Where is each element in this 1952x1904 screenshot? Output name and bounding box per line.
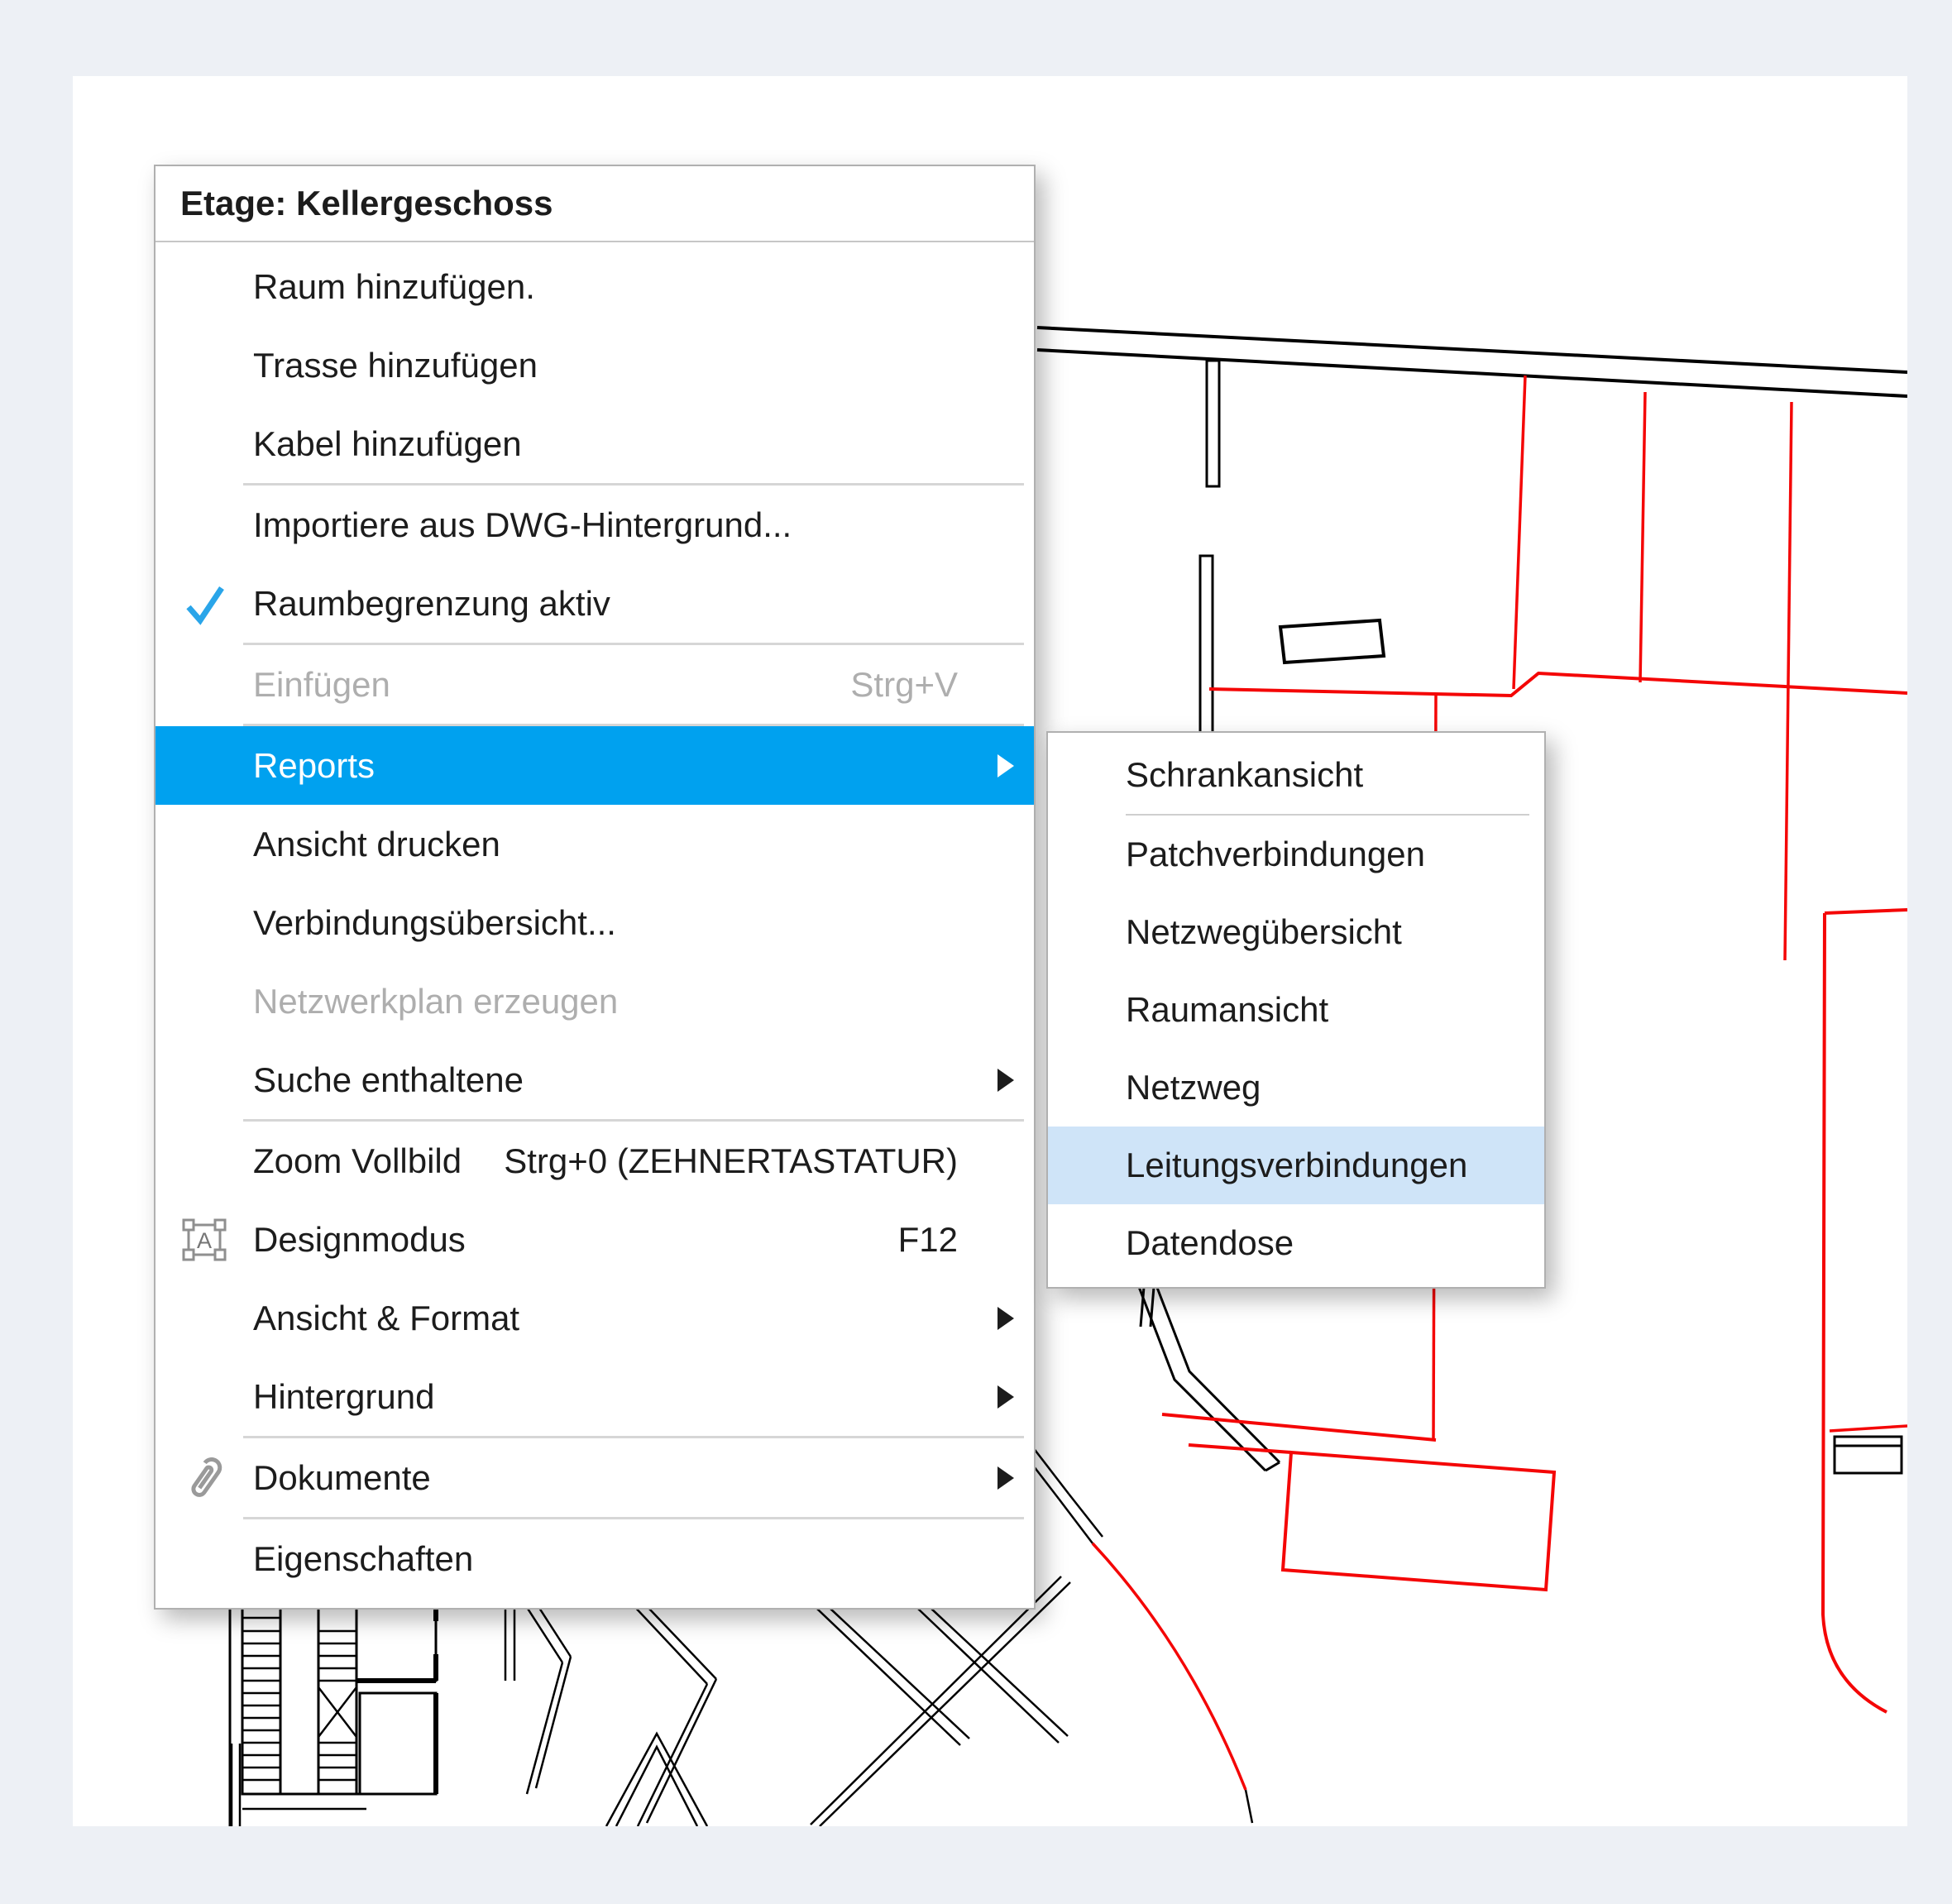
menu-item-label: Raumbegrenzung aktiv: [253, 584, 610, 624]
context-menu-title: Etage: Kellergeschoss: [180, 184, 553, 223]
submenu-arrow-icon: [998, 1385, 1014, 1409]
menu-item-zoom-vollbild[interactable]: Zoom Vollbild Strg+0 (ZEHNERTASTATUR): [155, 1122, 1034, 1200]
menu-item-eigenschaften[interactable]: Eigenschaften: [155, 1519, 1034, 1598]
menu-item-label: Dokumente: [253, 1458, 431, 1498]
submenu-arrow-icon: [998, 1307, 1014, 1330]
submenu-arrow-icon: [998, 1466, 1014, 1490]
menu-item-netzwerkplan-erzeugen[interactable]: Netzwerkplan erzeugen: [155, 962, 1034, 1041]
menu-item-trasse-hinzufuegen[interactable]: Trasse hinzufügen: [155, 326, 1034, 404]
menu-item-einfuegen[interactable]: Einfügen Strg+V: [155, 645, 1034, 724]
submenu-item-netzwegubersicht[interactable]: Netzwegübersicht: [1048, 893, 1544, 971]
menu-item-label: Importiere aus DWG-Hintergrund...: [253, 505, 792, 545]
svg-text:A: A: [197, 1228, 212, 1253]
menu-item-label: Netzwegübersicht: [1126, 912, 1402, 952]
menu-item-raum-hinzufuegen[interactable]: Raum hinzufügen.: [155, 247, 1034, 326]
menu-item-shortcut: Strg+0 (ZEHNERTASTATUR): [504, 1141, 958, 1181]
menu-item-reports[interactable]: Reports: [155, 726, 1034, 805]
submenu-item-raumansicht[interactable]: Raumansicht: [1048, 971, 1544, 1049]
menu-item-label: Netzweg: [1126, 1068, 1261, 1107]
menu-item-label: Designmodus: [253, 1220, 466, 1260]
menu-item-label: Schrankansicht: [1126, 755, 1363, 795]
menu-item-shortcut: Strg+V: [850, 665, 958, 705]
menu-item-label: Verbindungsübersicht...: [253, 903, 616, 943]
menu-item-label: Ansicht drucken: [253, 825, 500, 864]
context-menu: Etage: Kellergeschoss Raum hinzufügen. T…: [154, 165, 1036, 1610]
menu-item-label: Hintergrund: [253, 1377, 434, 1417]
paperclip-icon: [155, 1438, 253, 1517]
menu-item-label: Zoom Vollbild: [253, 1141, 462, 1181]
reports-submenu: Schrankansicht Patchverbindungen Netzweg…: [1046, 731, 1546, 1289]
checkmark-icon: [155, 564, 253, 643]
application-window: Etage: Kellergeschoss Raum hinzufügen. T…: [0, 0, 1952, 1904]
menu-item-label: Patchverbindungen: [1126, 835, 1425, 874]
design-mode-icon: A: [155, 1200, 253, 1279]
menu-item-label: Suche enthaltene: [253, 1060, 524, 1100]
menu-item-ansicht-und-format[interactable]: Ansicht & Format: [155, 1279, 1034, 1357]
submenu-item-patchverbindungen[interactable]: Patchverbindungen: [1048, 816, 1544, 893]
menu-item-designmodus[interactable]: A Designmodus F12: [155, 1200, 1034, 1279]
menu-item-label: Kabel hinzufügen: [253, 424, 522, 464]
menu-item-label: Eigenschaften: [253, 1539, 473, 1579]
menu-item-label: Datendose: [1126, 1223, 1294, 1263]
context-menu-header: Etage: Kellergeschoss: [155, 166, 1034, 242]
submenu-item-datendose[interactable]: Datendose: [1048, 1204, 1544, 1282]
menu-item-label: Leitungsverbindungen: [1126, 1146, 1467, 1185]
menu-item-dokumente[interactable]: Dokumente: [155, 1438, 1034, 1517]
menu-item-label: Raum hinzufügen.: [253, 267, 535, 307]
context-menu-items: Raum hinzufügen. Trasse hinzufügen Kabel…: [155, 242, 1034, 1608]
submenu-item-netzweg[interactable]: Netzweg: [1048, 1049, 1544, 1127]
submenu-arrow-icon: [998, 1069, 1014, 1092]
menu-item-raumbegrenzung-aktiv[interactable]: Raumbegrenzung aktiv: [155, 564, 1034, 643]
menu-item-kabel-hinzufuegen[interactable]: Kabel hinzufügen: [155, 404, 1034, 483]
menu-item-ansicht-drucken[interactable]: Ansicht drucken: [155, 805, 1034, 883]
menu-item-label: Raumansicht: [1126, 990, 1328, 1030]
menu-item-label: Trasse hinzufügen: [253, 346, 538, 385]
submenu-item-leitungsverbindungen[interactable]: Leitungsverbindungen: [1048, 1127, 1544, 1204]
menu-item-shortcut: F12: [898, 1220, 958, 1260]
menu-item-label: Einfügen: [253, 665, 390, 705]
submenu-item-schrankansicht[interactable]: Schrankansicht: [1048, 736, 1544, 814]
menu-item-importiere-dwg[interactable]: Importiere aus DWG-Hintergrund...: [155, 486, 1034, 564]
menu-item-label: Netzwerkplan erzeugen: [253, 982, 618, 1021]
menu-item-label: Ansicht & Format: [253, 1299, 519, 1338]
menu-item-verbindungsuebersicht[interactable]: Verbindungsübersicht...: [155, 883, 1034, 962]
submenu-arrow-icon: [998, 754, 1014, 777]
menu-item-suche-enthaltene[interactable]: Suche enthaltene: [155, 1041, 1034, 1119]
menu-item-hintergrund[interactable]: Hintergrund: [155, 1357, 1034, 1436]
menu-item-label: Reports: [253, 746, 375, 786]
